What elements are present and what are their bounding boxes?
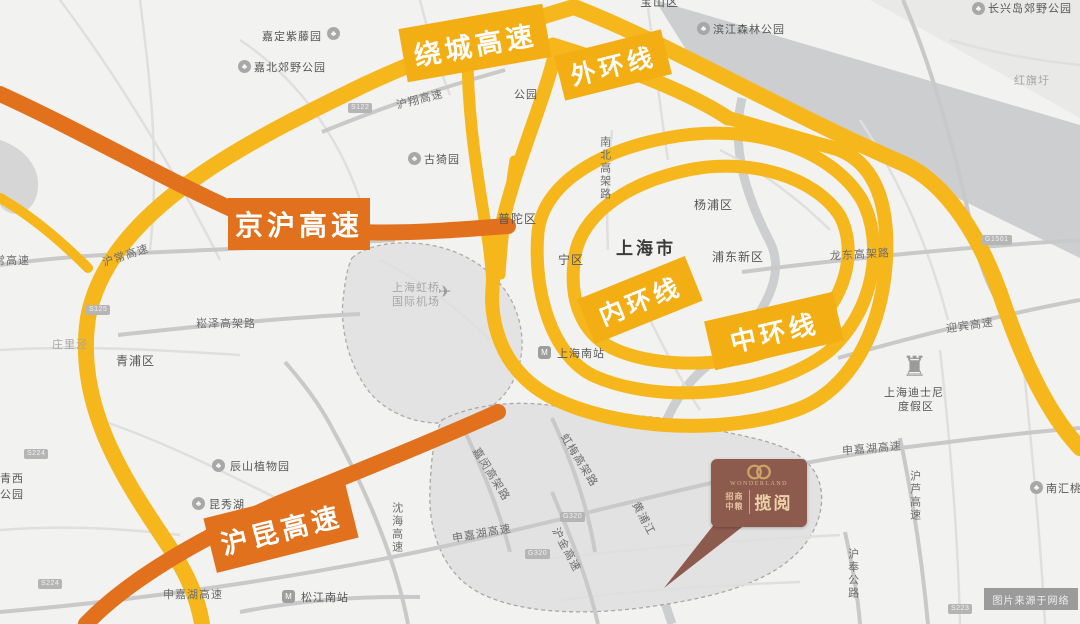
wonderland-logo-icon (744, 463, 774, 481)
map-label-songze-elevated: 崧泽高架路 (196, 318, 256, 331)
map-base-layer (0, 0, 1080, 624)
map-label-shenhai-expwy: 沈海高速 (390, 502, 403, 554)
map-label-pudong-new-district: 浦东新区 (712, 251, 764, 265)
plane-icon: ✈ (438, 282, 451, 302)
map-label-binjiang-forest-park: 滨江森林公园 (713, 24, 785, 37)
road-shield: G1501 (982, 235, 1012, 245)
map-label-nanhui-peach-village: 南汇桃花村 (1046, 483, 1080, 496)
map-label-chenshan-botanical-garden: 辰山植物园 (230, 461, 290, 474)
park-icon: ♣ (327, 27, 340, 40)
map-label-disney-line2: 度假区 (898, 401, 934, 414)
map-label-hongqixu: 红旗圩 (1014, 75, 1050, 88)
road-shield: G320 (525, 549, 550, 559)
marker-company-line1: 招商 (726, 492, 744, 502)
map-label-jiading-wisteria-park: 嘉定紫藤园 (262, 31, 322, 44)
marker-company-names: 招商 中粮 (726, 492, 744, 512)
park-icon: ♣ (972, 2, 985, 15)
train-station-icon: M (538, 346, 551, 359)
park-icon: ♣ (212, 459, 225, 472)
map-label-park-partial: 公园 (514, 89, 538, 102)
map-label-changning-district: 宁区 (558, 254, 584, 268)
map-label-shenjiahu-expwy-west: 申嘉湖高速 (163, 589, 223, 602)
road-shield: G320 (560, 512, 585, 522)
map-label-jiabei-country-park: 嘉北郊野公园 (254, 62, 326, 75)
road-shield: S224 (24, 449, 48, 459)
image-source-watermark: 图片来源于网络 (984, 588, 1078, 610)
park-icon: ♣ (408, 152, 421, 165)
map-label-yangpu-district: 杨浦区 (694, 199, 733, 213)
road-longdong-elevated (742, 240, 1080, 272)
road-shield: S223 (948, 604, 972, 614)
map-label-putuo-district: 普陀区 (498, 213, 537, 227)
map-label-disney-line1: 上海迪士尼 (884, 387, 944, 400)
marker-brand-text: WONDERLAND (730, 481, 788, 487)
marker-company-line2: 中粮 (726, 502, 744, 512)
map-label-zhuanglijing: 庄里泾 (52, 339, 88, 352)
map-label-hulu-expwy: 沪芦高速 (908, 470, 921, 522)
map-label-qingxi-park-line2: 公园 (0, 489, 24, 502)
map-label-hongqiao-airport-line1: 上海虹桥 (392, 282, 440, 295)
banner-jinghu-expressway: 京沪高速 (228, 198, 370, 250)
road-shield: S224 (38, 579, 62, 589)
park-icon: ♣ (238, 60, 251, 73)
map-label-qingpu-district: 青浦区 (116, 355, 155, 369)
map-label-huchang-expwy-edge: 常高速 (0, 255, 30, 268)
road-shield: S122 (348, 103, 372, 113)
road-hulu-expwy (900, 438, 928, 624)
marker-divider (749, 490, 750, 514)
park-icon: ♣ (697, 22, 710, 35)
castle-icon: ♜ (902, 350, 927, 383)
marker-project-name: 揽阅 (755, 489, 793, 514)
train-station-icon: M (282, 590, 295, 603)
map-label-hufeng-road: 沪奉公路 (846, 548, 859, 600)
map-canvas: 宝山区 嘉定紫藤园 ♣ ♣ 嘉北郊野公园 ♣ 滨江森林公园 ♣ 长兴岛郊野公园 … (0, 0, 1080, 624)
map-label-baoshan-district: 宝山区 (640, 0, 679, 10)
park-icon: ♣ (192, 497, 205, 510)
park-icon: ♣ (1030, 481, 1043, 494)
map-label-shanghai-south-station: 上海南站 (557, 348, 605, 361)
map-label-nanbei-elevated: 南北高架路 (598, 136, 611, 201)
road-shield: S125 (86, 305, 110, 315)
map-label-qingxi-park-line1: 青西 (0, 473, 24, 486)
map-label-guyi-garden: 古猗园 (424, 154, 460, 167)
project-marker: WONDERLAND 招商 中粮 揽阅 (711, 459, 807, 527)
map-label-changxing-island-park: 长兴岛郊野公园 (988, 3, 1072, 16)
map-label-songjiang-south-station: 松江南站 (301, 592, 349, 605)
map-label-shanghai-city: 上海市 (616, 239, 676, 259)
map-label-hongqiao-airport-line2: 国际机场 (392, 296, 440, 309)
